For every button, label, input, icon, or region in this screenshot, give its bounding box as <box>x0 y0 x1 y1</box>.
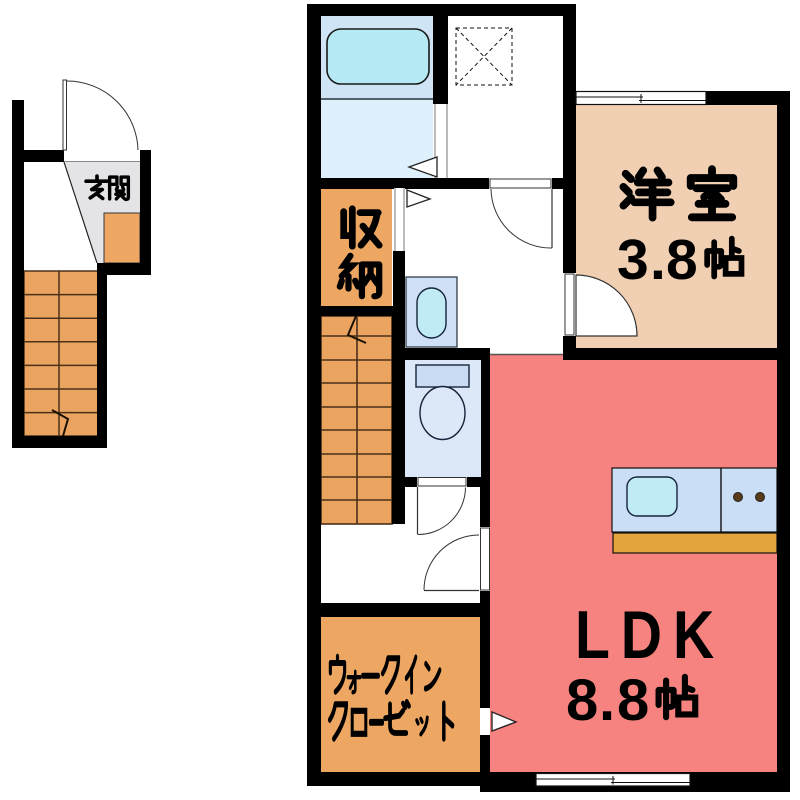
svg-text:.: . <box>599 668 615 733</box>
svg-text:8: 8 <box>566 668 598 733</box>
svg-text:LDK: LDK <box>575 597 725 673</box>
svg-text:3: 3 <box>617 228 649 292</box>
svg-text:.: . <box>650 228 666 292</box>
svg-text:8: 8 <box>666 228 698 292</box>
svg-text:8: 8 <box>617 668 649 733</box>
